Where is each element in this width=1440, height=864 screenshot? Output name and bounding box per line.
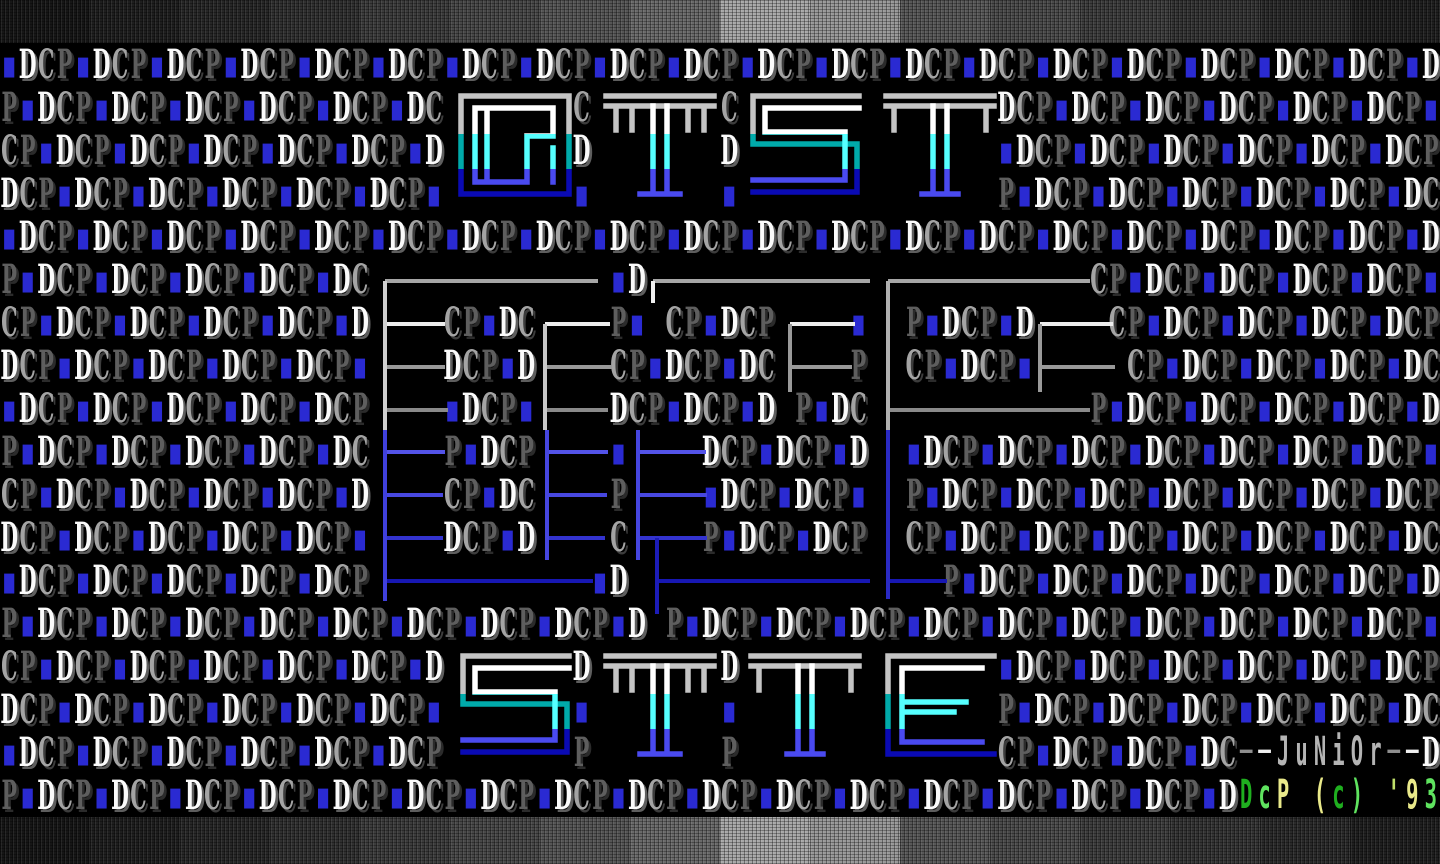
pattern-letter: C bbox=[203, 258, 221, 301]
pattern-letter: P bbox=[37, 516, 55, 559]
pattern-letter: D bbox=[92, 559, 110, 602]
pattern-letter: C bbox=[425, 602, 443, 645]
pattern-dot: ▪ bbox=[997, 645, 1015, 688]
dither-segment bbox=[450, 0, 540, 43]
pattern-letter: D bbox=[111, 602, 129, 645]
pattern-letter: D bbox=[1348, 387, 1366, 430]
pattern-dot: ▪ bbox=[388, 86, 406, 129]
pattern-letter: P bbox=[277, 559, 295, 602]
pattern-letter: P bbox=[720, 43, 738, 86]
pattern-dot: ▪ bbox=[166, 430, 184, 473]
pattern-letter: D bbox=[332, 774, 350, 817]
pattern-letter: D bbox=[1385, 473, 1403, 516]
pattern-letter: C bbox=[1348, 172, 1366, 215]
pattern-letter: C bbox=[314, 516, 332, 559]
pattern-letter: P bbox=[18, 301, 36, 344]
pattern-dot: ▪ bbox=[295, 559, 313, 602]
pattern-letter: D bbox=[92, 731, 110, 774]
pattern-letter: C bbox=[1422, 344, 1440, 387]
pattern-letter: P bbox=[166, 129, 184, 172]
pattern-letter: P bbox=[794, 387, 812, 430]
dither-segment bbox=[360, 817, 450, 864]
pattern-letter: D bbox=[388, 43, 406, 86]
pattern-letter: D bbox=[111, 430, 129, 473]
dcp-pattern-row: DCP▪DCP▪DCP▪DCP▪DCP▪DCP▪DCP▪DCP▪DCP▪DCP▪… bbox=[0, 516, 1440, 559]
pattern-letter: D bbox=[831, 43, 849, 86]
pattern-letter: P bbox=[665, 602, 683, 645]
pattern-letter: P bbox=[1403, 258, 1421, 301]
pattern-letter: P bbox=[1348, 473, 1366, 516]
pattern-letter: D bbox=[129, 645, 147, 688]
artist-credit: ─ bbox=[1237, 731, 1255, 774]
pattern-letter: D bbox=[978, 215, 996, 258]
pattern-letter: D bbox=[1274, 387, 1292, 430]
pattern-letter: P bbox=[1348, 301, 1366, 344]
pattern-letter: P bbox=[1108, 86, 1126, 129]
pattern-letter: C bbox=[425, 86, 443, 129]
pattern-letter: C bbox=[222, 473, 240, 516]
pattern-letter: C bbox=[1255, 473, 1273, 516]
pattern-letter: P bbox=[1034, 602, 1052, 645]
pattern-letter: P bbox=[92, 473, 110, 516]
ansi-screen: DCP DIST SITE ANSI screen ▪DCP▪DCP▪DCP▪D… bbox=[0, 0, 1440, 864]
pattern-letter: P bbox=[369, 602, 387, 645]
pattern-letter: P bbox=[738, 774, 756, 817]
pattern-letter: P bbox=[591, 774, 609, 817]
dither-segment bbox=[450, 817, 540, 864]
pattern-letter: C bbox=[166, 172, 184, 215]
pattern-letter: D bbox=[258, 86, 276, 129]
pattern-letter: D bbox=[18, 43, 36, 86]
pattern-letter: C bbox=[480, 43, 498, 86]
pattern-letter: C bbox=[1015, 774, 1033, 817]
dither-segment bbox=[1170, 817, 1260, 864]
pattern-letter: D bbox=[406, 86, 424, 129]
pattern-dot: ▪ bbox=[1366, 645, 1384, 688]
pattern-dot: ▪ bbox=[1292, 473, 1310, 516]
pattern-letter: C bbox=[1200, 172, 1218, 215]
pattern-letter: D bbox=[1311, 301, 1329, 344]
dither-segment bbox=[540, 817, 630, 864]
pattern-letter: P bbox=[222, 258, 240, 301]
pattern-letter: P bbox=[1237, 215, 1255, 258]
pattern-letter: P bbox=[960, 430, 978, 473]
pattern-dot: ▪ bbox=[1015, 688, 1033, 731]
copyright-credit: c bbox=[1255, 774, 1273, 817]
pattern-letter: P bbox=[443, 430, 461, 473]
pattern-letter: C bbox=[1348, 688, 1366, 731]
pattern-letter: C bbox=[222, 301, 240, 344]
pattern-letter: P bbox=[1237, 43, 1255, 86]
pattern-letter: C bbox=[1348, 516, 1366, 559]
pattern-letter: P bbox=[831, 473, 849, 516]
pattern-letter: P bbox=[148, 258, 166, 301]
pattern-letter: D bbox=[1182, 172, 1200, 215]
pattern-letter: D bbox=[923, 602, 941, 645]
pattern-letter: P bbox=[1218, 344, 1236, 387]
artist-credit: ─ bbox=[1403, 731, 1421, 774]
pattern-letter: P bbox=[1422, 473, 1440, 516]
pattern-letter: P bbox=[1034, 430, 1052, 473]
pattern-letter: P bbox=[812, 774, 830, 817]
pattern-letter: P bbox=[129, 43, 147, 86]
dither-segment bbox=[90, 817, 180, 864]
pattern-letter: D bbox=[0, 688, 18, 731]
pattern-letter: P bbox=[1385, 559, 1403, 602]
pattern-letter: D bbox=[166, 43, 184, 86]
pattern-letter: D bbox=[185, 86, 203, 129]
pattern-dot: ▪ bbox=[1182, 731, 1200, 774]
pattern-letter: P bbox=[1163, 731, 1181, 774]
pattern-dot: ▪ bbox=[1200, 86, 1218, 129]
pattern-letter: C bbox=[1034, 645, 1052, 688]
pattern-letter: C bbox=[462, 516, 480, 559]
pattern-letter: P bbox=[1348, 129, 1366, 172]
pattern-letter: D bbox=[498, 473, 516, 516]
pattern-letter: D bbox=[1145, 86, 1163, 129]
pattern-dot: ▪ bbox=[1071, 129, 1089, 172]
pattern-dot: ▪ bbox=[222, 731, 240, 774]
pattern-letter: P bbox=[0, 86, 18, 129]
pattern-letter: D bbox=[443, 344, 461, 387]
pattern-letter: P bbox=[240, 645, 258, 688]
pattern-letter: P bbox=[1163, 559, 1181, 602]
pattern-letter: P bbox=[314, 645, 332, 688]
pattern-dot: ▪ bbox=[185, 473, 203, 516]
pattern-letter: P bbox=[720, 215, 738, 258]
pattern-letter: C bbox=[240, 172, 258, 215]
pattern-letter: C bbox=[18, 344, 36, 387]
pattern-letter: P bbox=[314, 473, 332, 516]
pattern-letter: P bbox=[185, 516, 203, 559]
pattern-letter: C bbox=[665, 301, 683, 344]
pattern-letter: P bbox=[1403, 86, 1421, 129]
pattern-letter: D bbox=[1403, 516, 1421, 559]
pattern-dot: ▪ bbox=[148, 43, 166, 86]
pattern-dot: ▪ bbox=[222, 215, 240, 258]
pattern-letter: P bbox=[1422, 645, 1440, 688]
pattern-dot: ▪ bbox=[794, 516, 812, 559]
pattern-letter: D bbox=[185, 258, 203, 301]
copyright-credit bbox=[1366, 774, 1384, 817]
pattern-letter: D bbox=[369, 688, 387, 731]
pattern-dot: ▪ bbox=[1182, 559, 1200, 602]
pattern-letter: C bbox=[702, 215, 720, 258]
pattern-letter: D bbox=[1237, 645, 1255, 688]
pattern-letter: C bbox=[185, 215, 203, 258]
pattern-letter: C bbox=[757, 344, 775, 387]
pattern-letter: D bbox=[37, 602, 55, 645]
pattern-letter: P bbox=[1163, 43, 1181, 86]
pattern-dot: ▪ bbox=[1145, 645, 1163, 688]
pattern-dot: ▪ bbox=[978, 430, 996, 473]
pattern-letter: P bbox=[1182, 86, 1200, 129]
pattern-letter: D bbox=[111, 774, 129, 817]
pattern-dot: ▪ bbox=[1015, 344, 1033, 387]
dcp-pattern-row: P▪DCP▪DCP▪DCP▪DCP▪DCP▪DCP▪DCP▪DCP▪DCP▪DC… bbox=[0, 86, 1440, 129]
pattern-letter: P bbox=[720, 387, 738, 430]
pattern-dot: ▪ bbox=[203, 516, 221, 559]
pattern-letter: P bbox=[406, 172, 424, 215]
dcp-pattern-row: P▪DCP▪DCP▪DCP▪DCP▪DCP▪DCP▪DCP▪DCP▪DCP▪DC… bbox=[0, 602, 1440, 645]
pattern-letter: D bbox=[609, 215, 627, 258]
dither-segment bbox=[1080, 0, 1170, 43]
pattern-dot: ▪ bbox=[314, 430, 332, 473]
pattern-letter: C bbox=[1366, 559, 1384, 602]
pattern-letter: P bbox=[1145, 516, 1163, 559]
pattern-letter: P bbox=[757, 473, 775, 516]
pattern-letter: P bbox=[351, 559, 369, 602]
dither-segment bbox=[630, 0, 720, 43]
pattern-letter: P bbox=[794, 215, 812, 258]
pattern-letter: C bbox=[1385, 258, 1403, 301]
pattern-letter: P bbox=[1071, 516, 1089, 559]
pattern-letter: D bbox=[0, 344, 18, 387]
pattern-dot: ▪ bbox=[351, 344, 369, 387]
pattern-letter: C bbox=[258, 387, 276, 430]
pattern-letter: D bbox=[369, 172, 387, 215]
pattern-letter: C bbox=[351, 86, 369, 129]
pattern-letter: D bbox=[831, 387, 849, 430]
pattern-letter: C bbox=[720, 774, 738, 817]
pattern-letter: P bbox=[148, 602, 166, 645]
pattern-letter: C bbox=[111, 731, 129, 774]
pattern-letter: C bbox=[1089, 258, 1107, 301]
pattern-dot: ▪ bbox=[1052, 430, 1070, 473]
dcp-pattern-row: P▪DCP▪DCP▪DCP▪DCP▪DCP▪DCP▪DCP▪DCP▪DCP▪DC… bbox=[0, 258, 1440, 301]
pattern-dot: ▪ bbox=[1366, 129, 1384, 172]
pattern-letter: C bbox=[1292, 43, 1310, 86]
pattern-letter: C bbox=[720, 86, 738, 129]
pattern-dot: ▪ bbox=[92, 430, 110, 473]
pattern-dot: ▪ bbox=[1274, 430, 1292, 473]
pattern-letter: P bbox=[997, 344, 1015, 387]
pattern-dot: ▪ bbox=[923, 473, 941, 516]
pattern-letter: D bbox=[1422, 731, 1440, 774]
pattern-letter: P bbox=[628, 344, 646, 387]
pattern-letter: C bbox=[1237, 602, 1255, 645]
dither-segment bbox=[810, 817, 900, 864]
pattern-letter: D bbox=[1126, 43, 1144, 86]
pattern-letter: C bbox=[277, 602, 295, 645]
pattern-letter: D bbox=[849, 430, 867, 473]
pattern-letter: P bbox=[1255, 86, 1273, 129]
pattern-letter: D bbox=[738, 344, 756, 387]
pattern-letter: D bbox=[1366, 602, 1384, 645]
pattern-letter: C bbox=[55, 258, 73, 301]
pattern-letter: C bbox=[314, 172, 332, 215]
pattern-dot: ▪ bbox=[185, 645, 203, 688]
pattern-letter: C bbox=[351, 258, 369, 301]
pattern-letter: P bbox=[295, 86, 313, 129]
pattern-dot: ▪ bbox=[240, 774, 258, 817]
pattern-dot: ▪ bbox=[1403, 43, 1421, 86]
pattern-letter: D bbox=[1255, 344, 1273, 387]
pattern-letter: P bbox=[203, 559, 221, 602]
pattern-letter: D bbox=[258, 258, 276, 301]
pattern-dot: ▪ bbox=[517, 387, 535, 430]
pattern-dot: ▪ bbox=[702, 473, 720, 516]
pattern-letter: C bbox=[1071, 43, 1089, 86]
pattern-letter: D bbox=[111, 86, 129, 129]
pattern-dot: ▪ bbox=[37, 473, 55, 516]
pattern-letter: D bbox=[0, 516, 18, 559]
dither-segment bbox=[270, 0, 360, 43]
pattern-letter: C bbox=[1329, 129, 1347, 172]
pattern-dot: ▪ bbox=[258, 301, 276, 344]
pattern-letter: C bbox=[240, 688, 258, 731]
pattern-letter: D bbox=[1145, 774, 1163, 817]
pattern-letter: D bbox=[1366, 86, 1384, 129]
pattern-dot: ▪ bbox=[812, 387, 830, 430]
pattern-letter: D bbox=[18, 215, 36, 258]
pattern-dot: ▪ bbox=[240, 86, 258, 129]
pattern-dot: ▪ bbox=[905, 602, 923, 645]
pattern-letter: D bbox=[1274, 215, 1292, 258]
pattern-letter: P bbox=[1163, 387, 1181, 430]
pattern-letter: D bbox=[314, 387, 332, 430]
pattern-letter: D bbox=[203, 129, 221, 172]
pattern-letter: D bbox=[203, 645, 221, 688]
pattern-letter: P bbox=[1052, 129, 1070, 172]
pattern-letter: P bbox=[646, 43, 664, 86]
dither-segment bbox=[720, 0, 810, 43]
pattern-letter: D bbox=[1163, 645, 1181, 688]
pattern-letter: D bbox=[720, 645, 738, 688]
pattern-letter: P bbox=[1052, 645, 1070, 688]
dither-segment bbox=[630, 817, 720, 864]
pattern-dot: ▪ bbox=[295, 387, 313, 430]
pattern-letter: D bbox=[831, 215, 849, 258]
pattern-letter: P bbox=[258, 516, 276, 559]
pattern-dot: ▪ bbox=[609, 774, 627, 817]
pattern-dot: ▪ bbox=[609, 258, 627, 301]
pattern-letter: D bbox=[18, 387, 36, 430]
pattern-dot: ▪ bbox=[1403, 387, 1421, 430]
pattern-dot: ▪ bbox=[720, 172, 738, 215]
pattern-letter: C bbox=[1089, 602, 1107, 645]
pattern-letter: D bbox=[1237, 129, 1255, 172]
pattern-dot: ▪ bbox=[1108, 387, 1126, 430]
pattern-letter: P bbox=[1292, 688, 1310, 731]
pattern-dot: ▪ bbox=[1292, 301, 1310, 344]
pattern-letter: D bbox=[1200, 43, 1218, 86]
pattern-letter: C bbox=[1015, 86, 1033, 129]
pattern-letter: D bbox=[609, 387, 627, 430]
pattern-letter: C bbox=[37, 215, 55, 258]
pattern-letter: D bbox=[480, 430, 498, 473]
pattern-letter: C bbox=[0, 129, 18, 172]
pattern-dot: ▪ bbox=[277, 688, 295, 731]
pattern-letter: D bbox=[757, 387, 775, 430]
pattern-letter: P bbox=[351, 387, 369, 430]
pattern-letter: C bbox=[0, 645, 18, 688]
pattern-letter: D bbox=[720, 129, 738, 172]
pattern-letter: P bbox=[1200, 301, 1218, 344]
pattern-dot: ▪ bbox=[702, 301, 720, 344]
pattern-letter: C bbox=[185, 43, 203, 86]
pattern-letter: C bbox=[480, 215, 498, 258]
pattern-dot: ▪ bbox=[129, 344, 147, 387]
pattern-letter: P bbox=[480, 344, 498, 387]
pattern-letter: P bbox=[1292, 172, 1310, 215]
pattern-letter: D bbox=[222, 172, 240, 215]
pattern-letter: D bbox=[1329, 172, 1347, 215]
pattern-letter: C bbox=[74, 645, 92, 688]
pattern-letter: P bbox=[1274, 645, 1292, 688]
pattern-letter: P bbox=[0, 602, 18, 645]
pattern-letter: C bbox=[1422, 516, 1440, 559]
pattern-letter: D bbox=[1274, 559, 1292, 602]
pattern-letter: D bbox=[1052, 215, 1070, 258]
pattern-letter: D bbox=[277, 301, 295, 344]
pattern-dot: ▪ bbox=[1237, 516, 1255, 559]
pattern-dot: ▪ bbox=[295, 731, 313, 774]
pattern-letter: D bbox=[720, 301, 738, 344]
pattern-letter: P bbox=[1366, 172, 1384, 215]
pattern-letter: D bbox=[1218, 602, 1236, 645]
pattern-dot: ▪ bbox=[1385, 344, 1403, 387]
copyright-credit: 9 bbox=[1403, 774, 1421, 817]
pattern-letter: D bbox=[351, 129, 369, 172]
pattern-letter: C bbox=[1403, 473, 1421, 516]
pattern-letter: D bbox=[1311, 645, 1329, 688]
pattern-letter: P bbox=[295, 258, 313, 301]
pattern-letter: C bbox=[923, 215, 941, 258]
dither-segment bbox=[720, 817, 810, 864]
dcp-pattern-row: ▪DCP▪DCP▪DCP▪DCP▪DCP▪DCP▪DCP▪DCP▪DCP▪DCP… bbox=[0, 731, 1440, 774]
pattern-letter: P bbox=[314, 129, 332, 172]
pattern-letter: D bbox=[351, 645, 369, 688]
pattern-letter: C bbox=[314, 344, 332, 387]
pattern-dot: ▪ bbox=[609, 602, 627, 645]
pattern-letter: C bbox=[332, 731, 350, 774]
pattern-letter: C bbox=[1145, 387, 1163, 430]
pattern-letter: C bbox=[1311, 86, 1329, 129]
pattern-letter: P bbox=[351, 43, 369, 86]
pattern-letter: P bbox=[222, 774, 240, 817]
pattern-letter: D bbox=[1108, 172, 1126, 215]
pattern-letter: C bbox=[148, 301, 166, 344]
pattern-letter: C bbox=[554, 43, 572, 86]
pattern-letter: C bbox=[388, 688, 406, 731]
pattern-dot: ▪ bbox=[55, 172, 73, 215]
pattern-letter: D bbox=[1200, 731, 1218, 774]
pattern-letter: P bbox=[868, 215, 886, 258]
pattern-letter: P bbox=[0, 258, 18, 301]
copyright-credit: D bbox=[1237, 774, 1255, 817]
pattern-letter: D bbox=[55, 473, 73, 516]
pattern-letter: D bbox=[1422, 387, 1440, 430]
pattern-letter: P bbox=[572, 215, 590, 258]
pattern-letter: D bbox=[185, 774, 203, 817]
copyright-credit: ) bbox=[1348, 774, 1366, 817]
pattern-letter: P bbox=[37, 172, 55, 215]
pattern-dot: ▪ bbox=[1089, 688, 1107, 731]
pattern-letter: D bbox=[517, 344, 535, 387]
pattern-letter: P bbox=[683, 301, 701, 344]
pattern-letter: P bbox=[166, 645, 184, 688]
pattern-letter: P bbox=[1218, 172, 1236, 215]
pattern-letter: C bbox=[55, 430, 73, 473]
pattern-letter: C bbox=[1255, 645, 1273, 688]
pattern-dot: ▪ bbox=[1034, 43, 1052, 86]
pattern-dot: ▪ bbox=[886, 215, 904, 258]
pattern-letter: P bbox=[1015, 731, 1033, 774]
dcp-pattern-row: DCP▪DCP▪DCP▪DCP▪DCP▪DCP▪DCP▪DCP▪DCP▪DCP▪… bbox=[0, 344, 1440, 387]
pattern-letter: P bbox=[738, 430, 756, 473]
pattern-dot: ▪ bbox=[443, 215, 461, 258]
